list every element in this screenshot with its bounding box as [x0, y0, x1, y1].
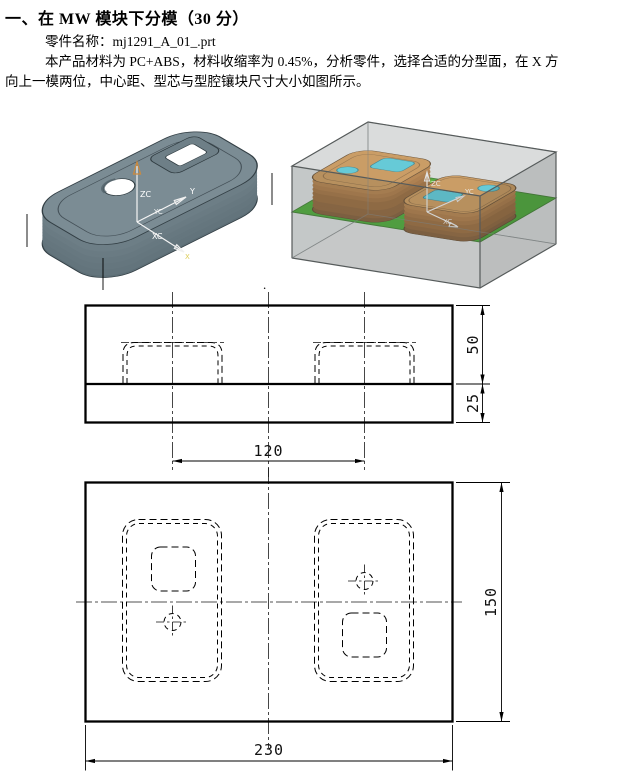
dim-230: 230 [86, 725, 453, 771]
center-mark-left [156, 606, 189, 639]
part-axis-label-y: Y [189, 187, 195, 196]
part-body [26, 123, 273, 290]
side-view-drawing: 50 25 120 [86, 292, 491, 477]
dim-50-25: 50 25 [456, 306, 490, 423]
part-axis-label-x: X [185, 253, 190, 261]
dim-120: 120 [173, 442, 365, 463]
insert-outline-right [315, 520, 414, 682]
dim-150: 150 [456, 483, 510, 722]
plan-view-drawing: 150 230 [76, 468, 510, 771]
body-text-line-1: 本产品材料为 PC+ABS，材料收缩率为 0.45%，分析零件，选择合适的分型面… [45, 50, 559, 70]
dim-label-120: 120 [253, 442, 283, 460]
dim-label-230: 230 [254, 741, 284, 759]
dim-label-50: 50 [464, 334, 482, 354]
cad-renders: ZC Y YC XC X . [0, 100, 620, 290]
center-mark-right [348, 565, 381, 598]
body-text-line-2: 向上一模两位，中心距、型芯与型腔镶块尺寸大小如图所示。 [5, 70, 370, 90]
part-name-line: 零件名称：mj1291_A_01_.prt [45, 30, 216, 50]
part-axis-label-yc: YC [153, 208, 163, 216]
square-hole-right [343, 613, 387, 657]
mold-plate-outline [86, 306, 453, 423]
part-isometric-view: ZC Y YC XC X . [26, 123, 273, 290]
dim-label-150: 150 [482, 587, 500, 617]
section-heading: 一、在 MW 模块下分模（30 分） [5, 5, 249, 29]
part-axis-label-xc: XC [152, 232, 163, 241]
part-axis-label-zc: ZC [140, 190, 151, 199]
mold-cavity-view: ZC YC XC [292, 122, 556, 288]
insert-outline-left [123, 520, 222, 682]
dim-label-25: 25 [464, 393, 482, 413]
square-hole-left [152, 547, 196, 591]
engineering-drawings: 50 25 120 [0, 288, 620, 771]
document-page: 一、在 MW 模块下分模（30 分） 零件名称：mj1291_A_01_.prt… [0, 0, 620, 771]
